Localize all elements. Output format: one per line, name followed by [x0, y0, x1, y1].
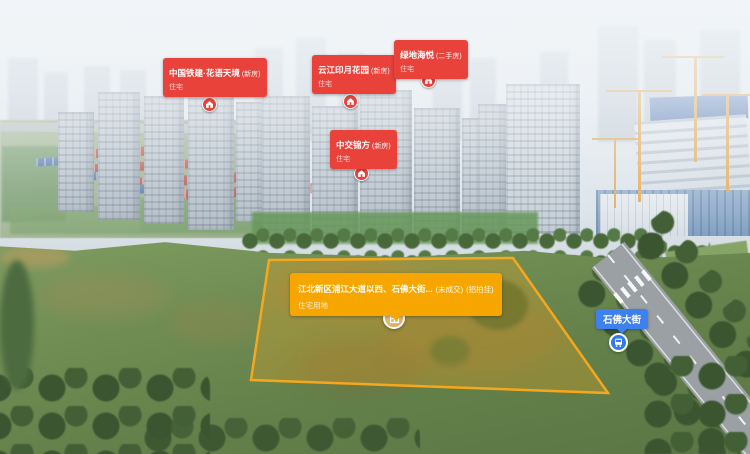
street-marker[interactable]: [609, 333, 628, 352]
property-category: 住宅: [336, 156, 391, 165]
house-icon: [357, 169, 366, 178]
property-title: 云江印月花园(新房): [318, 59, 390, 79]
land-parcel-label[interactable]: 江北新区浦江大道以西、石佛大街...(未成交)(招拍挂) 住宅用地: [290, 273, 502, 316]
house-icon: [346, 97, 355, 106]
property-category: 住宅: [318, 81, 390, 90]
property-label-lvdihaiyue[interactable]: 绿地海悦(二手房) 住宅: [394, 40, 468, 79]
street-name-label[interactable]: 石佛大街: [596, 309, 648, 329]
property-label-huayutianjing[interactable]: 中国铁建·花语天境(新房) 住宅: [163, 58, 267, 97]
property-marker[interactable]: [343, 94, 358, 109]
house-icon: [205, 100, 214, 109]
property-title: 中交锦方(新房): [336, 134, 391, 154]
parcel-title: 江北新区浦江大道以西、石佛大街...(未成交)(招拍挂): [298, 278, 494, 299]
property-title: 中国铁建·花语天境(新房): [169, 62, 261, 82]
property-category: 住宅: [169, 84, 261, 93]
bus-icon: [613, 337, 624, 348]
property-marker[interactable]: [202, 97, 217, 112]
aerial-map-view: 中国铁建·花语天境(新房) 住宅 云江印月花园(新房) 住宅 绿地海悦(二手房)…: [0, 0, 750, 454]
property-label-zhongjiaojinfang[interactable]: 中交锦方(新房) 住宅: [330, 130, 397, 169]
parcel-category: 住宅用地: [298, 301, 494, 311]
property-label-yunjiangyinyue[interactable]: 云江印月花园(新房) 住宅: [312, 55, 396, 94]
property-category: 住宅: [400, 66, 462, 75]
property-title: 绿地海悦(二手房): [400, 44, 462, 64]
